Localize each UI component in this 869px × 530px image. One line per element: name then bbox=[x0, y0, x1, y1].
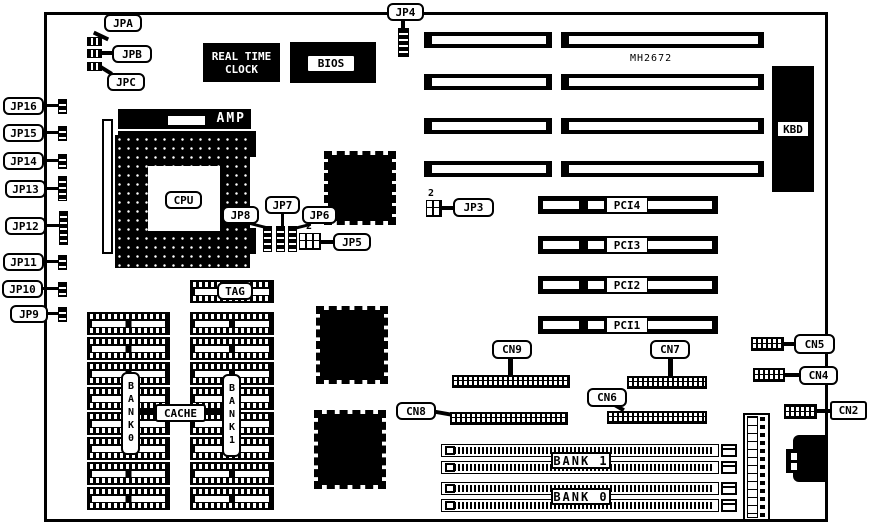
cache-chip bbox=[87, 462, 170, 485]
din-notch bbox=[791, 453, 797, 460]
socket-retention-bar bbox=[102, 119, 113, 254]
connector-label-cn8: CN8 bbox=[396, 402, 436, 420]
leader-line-cn2 bbox=[817, 409, 830, 413]
jumper-block-jp11 bbox=[58, 255, 67, 270]
jumper-label-jpb: JPB bbox=[112, 45, 152, 63]
leader-line-jp5 bbox=[321, 240, 333, 244]
jumper-label-jp12: JP12 bbox=[5, 217, 46, 235]
jumper-block-jp13 bbox=[58, 176, 67, 201]
leader-line-jp14 bbox=[43, 159, 58, 162]
jp3-pin2-marker: 2 bbox=[428, 188, 434, 199]
connector-label-cn6: CN6 bbox=[587, 388, 627, 407]
cache-label: CACHE bbox=[155, 404, 206, 422]
leader-line-jp7 bbox=[281, 213, 284, 226]
isa-slot-segment bbox=[561, 161, 764, 177]
pin-header-cn9 bbox=[452, 375, 570, 388]
jumper-label-jp10: JP10 bbox=[2, 280, 43, 298]
leader-line-cn9 bbox=[508, 358, 513, 375]
simm-clip bbox=[445, 501, 455, 510]
leader-line-cn7 bbox=[668, 358, 673, 376]
cache-link-right bbox=[203, 409, 223, 415]
cache-chip bbox=[87, 312, 170, 335]
isa-slot-segment bbox=[424, 118, 552, 134]
simm-bank0-label: BANK 0 bbox=[551, 488, 611, 505]
simm-clip bbox=[721, 482, 737, 495]
isa-slot-segment bbox=[424, 161, 552, 177]
leader-line-jp15 bbox=[43, 131, 58, 134]
leader-line-jp11 bbox=[43, 260, 58, 263]
cache-chip bbox=[190, 337, 274, 360]
pin-header-cn6 bbox=[607, 411, 707, 424]
pin-header-cn4 bbox=[753, 368, 785, 382]
motherboard-diagram: JPA JPB JPC REAL TIME CLOCK BIOS JP4 MH2… bbox=[0, 0, 869, 530]
socket-tab-top bbox=[250, 131, 256, 157]
jumper-block-jp7 bbox=[276, 226, 285, 252]
jumper-label-jp4: JP4 bbox=[387, 3, 424, 21]
jumper-block-jpa bbox=[87, 37, 102, 46]
jumper-block-jp9 bbox=[58, 307, 67, 322]
board-model-text: MH2672 bbox=[630, 53, 672, 64]
cache-bank0-label: BANK0 bbox=[121, 372, 140, 455]
jumper-label-jp14: JP14 bbox=[3, 152, 44, 170]
kbd-label: KBD bbox=[777, 121, 809, 137]
jumper-block-jp4 bbox=[398, 28, 409, 57]
simm-clip bbox=[721, 461, 737, 474]
socket-tab-bottom bbox=[250, 228, 256, 254]
isa-slot-segment bbox=[561, 74, 764, 90]
qfp-chip bbox=[314, 410, 386, 489]
simm-clip bbox=[445, 484, 455, 493]
connector-label-cn7: CN7 bbox=[650, 340, 690, 359]
jumper-block-jp12 bbox=[59, 211, 68, 245]
pci-slot-2: PCI2 bbox=[538, 276, 718, 294]
cpu-label: CPU bbox=[165, 191, 202, 209]
jumper-label-jpa: JPA bbox=[104, 14, 142, 32]
leader-line-jp4 bbox=[401, 20, 405, 28]
keyboard-din-connector bbox=[793, 435, 827, 482]
jumper-block-jp15 bbox=[58, 126, 67, 141]
cache-chip bbox=[87, 337, 170, 360]
power-connector bbox=[743, 413, 770, 521]
din-notch bbox=[791, 463, 797, 470]
bios-label: BIOS bbox=[307, 55, 355, 72]
connector-label-cn9: CN9 bbox=[492, 340, 532, 359]
pin-header-cn2 bbox=[784, 404, 817, 419]
leader-line-jp3 bbox=[442, 206, 453, 210]
jumper-block-jp8 bbox=[263, 226, 272, 252]
jumper-label-jp16: JP16 bbox=[3, 97, 44, 115]
jumper-label-jp5: JP5 bbox=[333, 233, 371, 251]
jumper-label-jp9: JP9 bbox=[10, 305, 48, 323]
connector-label-cn5: CN5 bbox=[794, 334, 835, 354]
pci-slot-3: PCI3 bbox=[538, 236, 718, 254]
jumper-block-jp3 bbox=[426, 200, 442, 217]
cache-bank1-label: BANK1 bbox=[222, 374, 241, 457]
qfp-chip bbox=[316, 306, 388, 384]
jp5-pin2-marker: 2 bbox=[306, 221, 312, 232]
connector-label-cn4: CN4 bbox=[799, 366, 838, 385]
jumper-label-jp8: JP8 bbox=[222, 206, 259, 224]
amp-socket-bar: AMP bbox=[118, 109, 251, 129]
cache-chip bbox=[190, 487, 274, 510]
simm-clip bbox=[445, 446, 455, 455]
isa-slot-segment bbox=[424, 74, 552, 90]
isa-slot-segment bbox=[561, 118, 764, 134]
jumper-block-jp10 bbox=[58, 282, 67, 297]
leader-line-cn4 bbox=[785, 373, 799, 377]
connector-label-cn2: CN2 bbox=[830, 401, 867, 420]
pin-header-cn7 bbox=[627, 376, 707, 389]
jumper-block-jp16 bbox=[58, 99, 67, 114]
jumper-block-jp5 bbox=[299, 233, 321, 250]
jumper-block-jp6 bbox=[288, 226, 297, 252]
cache-chip bbox=[190, 312, 274, 335]
cache-chip bbox=[190, 462, 274, 485]
simm-clip bbox=[721, 499, 737, 512]
isa-slot-segment bbox=[561, 32, 764, 48]
rtc-chip: REAL TIME CLOCK bbox=[203, 43, 280, 82]
jumper-label-jp15: JP15 bbox=[3, 124, 44, 142]
simm-clip bbox=[445, 463, 455, 472]
pci-slot-1: PCI1 bbox=[538, 316, 718, 334]
leader-line-jp13 bbox=[45, 187, 58, 190]
jumper-label-jpc: JPC bbox=[107, 73, 145, 91]
cache-chip bbox=[87, 487, 170, 510]
jumper-block-jp14 bbox=[58, 154, 67, 169]
tag-label: TAG bbox=[217, 282, 253, 300]
leader-line-jp10 bbox=[42, 287, 58, 290]
isa-slot-segment bbox=[424, 32, 552, 48]
jumper-label-jp11: JP11 bbox=[3, 253, 44, 271]
pin-header-cn8 bbox=[450, 412, 568, 425]
simm-bank1-label: BANK 1 bbox=[551, 452, 611, 469]
jumper-label-jp3: JP3 bbox=[453, 198, 494, 217]
leader-line-jp16 bbox=[43, 104, 58, 107]
pci-slot-4: PCI4 bbox=[538, 196, 718, 214]
jumper-label-jp13: JP13 bbox=[5, 180, 46, 198]
pin-header-cn5 bbox=[751, 337, 784, 351]
simm-clip bbox=[721, 444, 737, 457]
leader-line-jp12 bbox=[45, 224, 59, 227]
jumper-label-jp7: JP7 bbox=[265, 196, 300, 214]
